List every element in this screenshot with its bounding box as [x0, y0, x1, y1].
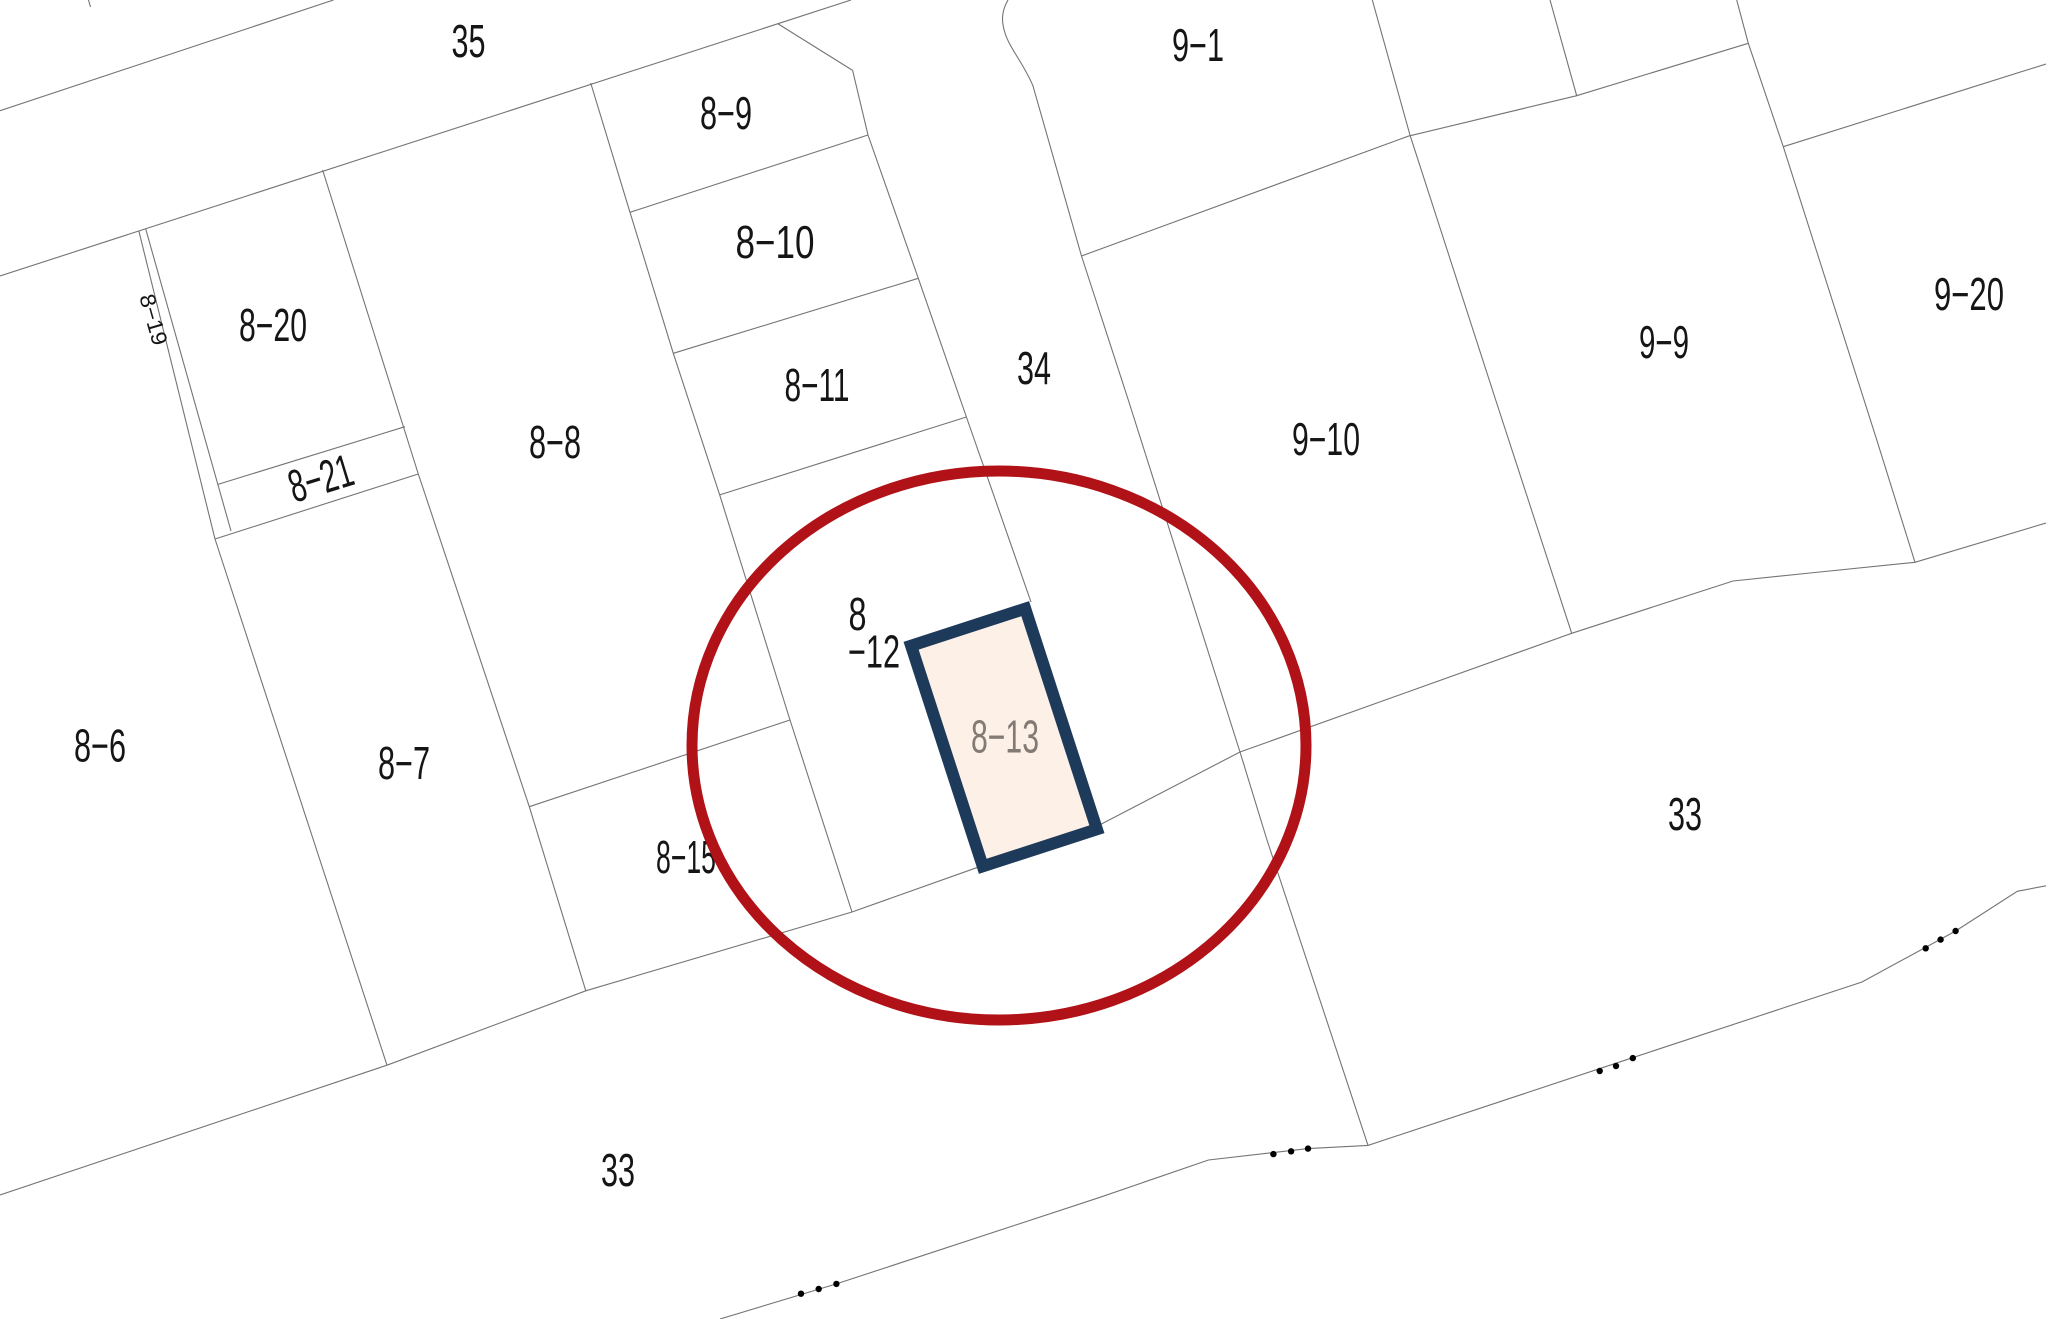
svg-text:9−1: 9−1 — [1172, 19, 1224, 71]
svg-text:8−6: 8−6 — [74, 720, 126, 772]
svg-text:9−9: 9−9 — [1639, 316, 1689, 368]
svg-text:9−10: 9−10 — [1292, 413, 1360, 465]
svg-text:35: 35 — [452, 15, 486, 67]
svg-text:33: 33 — [1668, 788, 1702, 840]
svg-text:34: 34 — [1017, 342, 1051, 394]
svg-text:8−8: 8−8 — [529, 416, 581, 468]
svg-text:−12: −12 — [848, 626, 900, 678]
svg-text:8−9: 8−9 — [700, 87, 752, 139]
svg-text:8−11: 8−11 — [785, 359, 850, 411]
svg-text:8−10: 8−10 — [736, 216, 815, 268]
svg-text:8−20: 8−20 — [239, 299, 307, 351]
svg-text:8−7: 8−7 — [378, 737, 430, 789]
svg-text:33: 33 — [601, 1144, 635, 1196]
svg-text:8−13: 8−13 — [971, 711, 1039, 763]
svg-text:9−20: 9−20 — [1934, 268, 2004, 320]
